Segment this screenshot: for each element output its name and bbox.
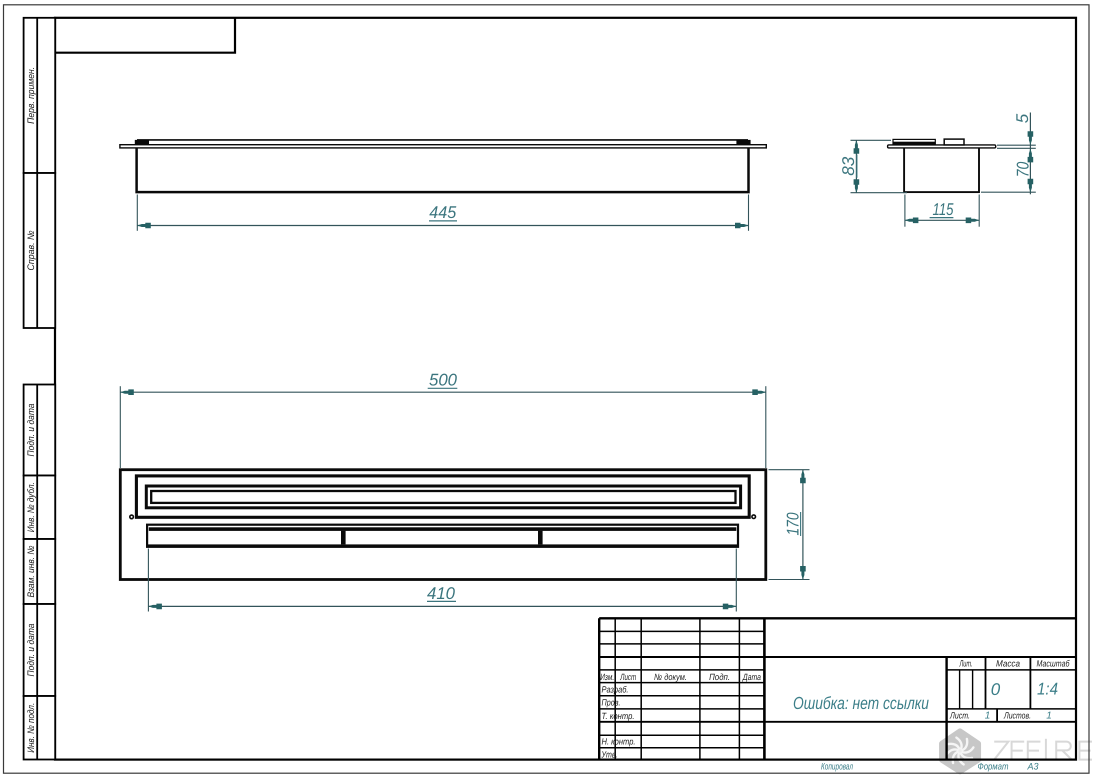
svg-text:Лит.: Лит. (959, 659, 973, 669)
svg-text:Разраб.: Разраб. (602, 685, 629, 695)
svg-text:1: 1 (1046, 711, 1052, 722)
svg-text:Дата: Дата (742, 672, 761, 682)
svg-text:Масса: Масса (996, 659, 1020, 669)
svg-text:Листов.: Листов. (1003, 711, 1031, 721)
svg-text:Справ. №: Справ. № (26, 231, 37, 271)
svg-text:115: 115 (933, 200, 954, 219)
svg-text:445: 445 (429, 203, 457, 222)
svg-text:1: 1 (985, 711, 991, 722)
svg-text:Пров.: Пров. (602, 698, 621, 708)
svg-text:Подп.: Подп. (709, 672, 730, 682)
svg-text:170: 170 (783, 512, 802, 535)
svg-text:Инв. № дубл.: Инв. № дубл. (26, 482, 37, 532)
svg-text:70: 70 (1013, 161, 1032, 177)
svg-text:5: 5 (1013, 113, 1032, 123)
svg-text:Взам. инв. №: Взам. инв. № (26, 546, 37, 598)
svg-text:Т. контр.: Т. контр. (602, 711, 635, 721)
svg-text:№ докум.: № докум. (654, 672, 687, 682)
svg-text:Изм.: Изм. (600, 672, 614, 682)
svg-text:Подп. и дата: Подп. и дата (26, 624, 37, 677)
svg-text:Копировал: Копировал (821, 762, 853, 773)
svg-text:Лист.: Лист. (949, 711, 970, 721)
svg-text:1:4: 1:4 (1037, 679, 1058, 698)
svg-text:Ошибка: нет ссылки: Ошибка: нет ссылки (793, 693, 929, 713)
svg-text:0: 0 (991, 680, 1001, 699)
svg-text:Инв. № подл.: Инв. № подл. (26, 703, 37, 753)
svg-text:А3: А3 (1027, 762, 1040, 773)
svg-text:Перв. примен.: Перв. примен. (26, 67, 37, 124)
svg-text:Лист: Лист (620, 672, 637, 682)
svg-text:Масштаб: Масштаб (1037, 659, 1071, 669)
svg-text:83: 83 (839, 156, 858, 176)
svg-text:Утв.: Утв. (601, 749, 618, 759)
svg-text:500: 500 (429, 370, 458, 389)
svg-text:Формат: Формат (978, 762, 1009, 773)
svg-text:Н. контр.: Н. контр. (602, 737, 636, 747)
svg-text:410: 410 (427, 584, 456, 603)
svg-text:Подп. и дата: Подп. и дата (26, 404, 37, 457)
